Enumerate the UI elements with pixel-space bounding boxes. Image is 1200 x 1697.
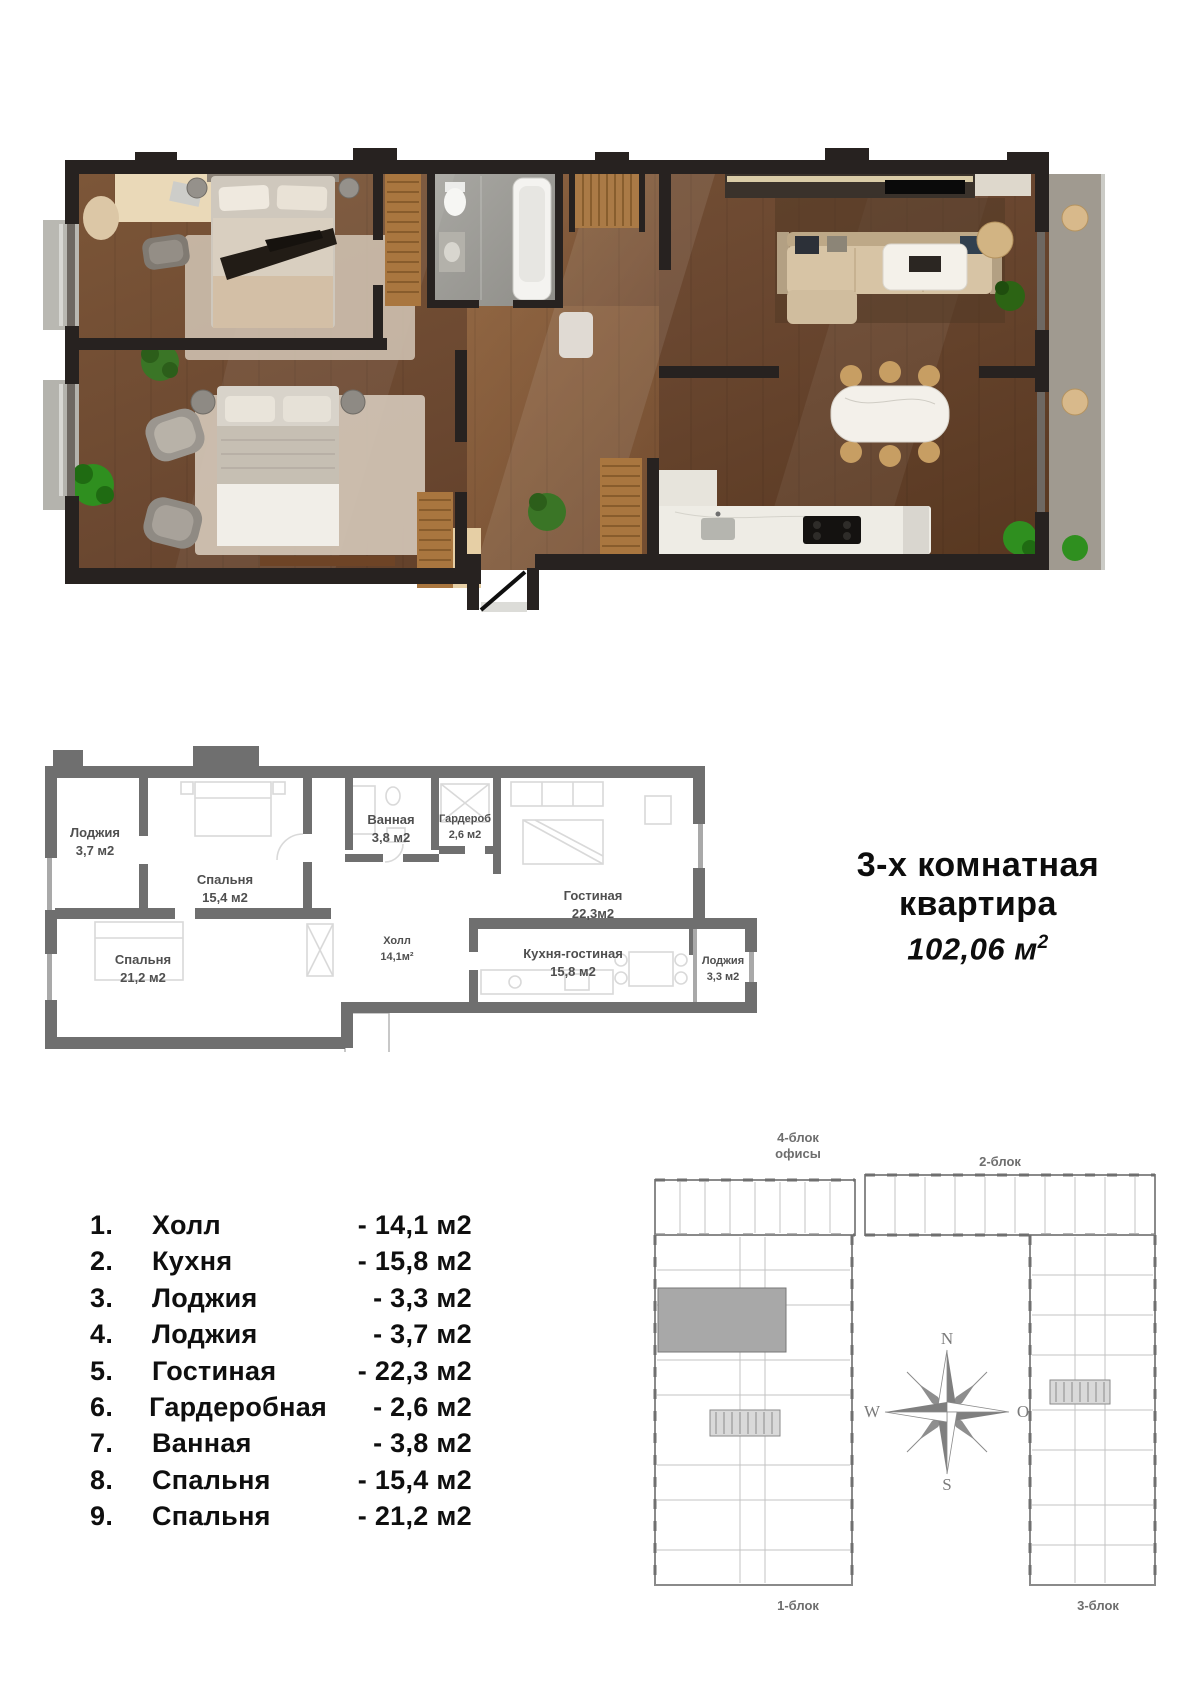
side-table (191, 390, 215, 414)
room-label-wardrobe: Гардероб (439, 813, 491, 825)
block-2 (865, 1175, 1155, 1235)
entrance-door (481, 572, 527, 612)
room-label-bedroom-154: Спальня (197, 872, 253, 887)
armchair (83, 196, 119, 240)
compass-south-label: S (942, 1475, 951, 1494)
plant (1062, 535, 1088, 561)
dining-table (831, 386, 949, 442)
schematic-plan-2d: Лоджия 3,7 м2 Спальня 15,4 м2 Спальня 21… (45, 712, 757, 1052)
block-4 (655, 1180, 855, 1235)
floorplan-poster: Лоджия 3,7 м2 Спальня 15,4 м2 Спальня 21… (0, 0, 1200, 1697)
duvet (217, 484, 339, 546)
room-legend: 1.Холл- 14,1 м2 2.Кухня- 15,8 м2 3.Лоджи… (90, 1210, 472, 1538)
side-table (339, 178, 359, 198)
side-table (341, 390, 365, 414)
wicker-chair (1062, 389, 1088, 415)
sink (444, 242, 460, 262)
room-label-kitchen: Кухня-гостиная (523, 946, 623, 961)
pillow (795, 236, 819, 254)
legend-row: 9.Спальня- 21,2 м2 (90, 1501, 472, 1537)
room-area-kitchen: 15,8 м2 (550, 964, 596, 979)
compass-rose: N W O S (864, 1329, 1029, 1494)
apartment-title-block: 3-х комнатная квартира 102,06 м2 (792, 846, 1164, 968)
room-area-bath: 3,8 м2 (372, 830, 411, 845)
fridge (903, 506, 929, 554)
block-1 (655, 1235, 852, 1585)
room-label-loggia-33: Лоджия (702, 955, 744, 967)
room-label-bath: Ванная (367, 812, 414, 827)
block4-label-line2: офисы (775, 1146, 821, 1161)
chair (840, 441, 862, 463)
apartment-type-line1: 3-х комнатная (792, 846, 1164, 885)
walls-2d (45, 746, 757, 1049)
reading-chair (977, 222, 1013, 258)
block2-label: 2-блок (979, 1154, 1021, 1169)
room-label-bedroom-212: Спальня (115, 952, 171, 967)
compass-east-label: O (1017, 1402, 1029, 1421)
compass-north-label: N (941, 1329, 953, 1348)
compass-west-label: W (864, 1402, 881, 1421)
tv (885, 180, 965, 194)
block1-label: 1-блок (777, 1598, 819, 1613)
render-plan-3d (35, 140, 1165, 615)
legend-row: 1.Холл- 14,1 м2 (90, 1210, 472, 1246)
chair (918, 365, 940, 387)
bath-mat (559, 312, 593, 358)
balcony-rail (1101, 174, 1105, 570)
pillow (225, 396, 275, 422)
chair (840, 365, 862, 387)
blanket (213, 276, 333, 328)
pillow (218, 185, 269, 212)
side-table (187, 178, 207, 198)
room-area-loggia-37: 3,7 м2 (76, 843, 115, 858)
room-area-living: 22,3м2 (572, 906, 614, 921)
apartment-total-area: 102,06 м2 (792, 924, 1164, 968)
block-3 (1030, 1235, 1155, 1585)
block3-label: 3-блок (1077, 1598, 1119, 1613)
block4-label-line1: 4-блок (777, 1130, 819, 1145)
legend-row: 3.Лоджия- 3,3 м2 (90, 1283, 472, 1319)
tray (909, 256, 941, 272)
sofa-chaise (787, 290, 857, 324)
legend-row: 5.Гостиная- 22,3 м2 (90, 1356, 472, 1392)
room-area-hall: 14,1м² (380, 951, 414, 963)
cooktop (803, 516, 861, 544)
wicker-chair (1062, 205, 1088, 231)
right-balcony-floor (1049, 174, 1101, 570)
room-area-loggia-33: 3,3 м2 (707, 971, 740, 983)
legend-row: 2.Кухня- 15,8 м2 (90, 1246, 472, 1282)
room-area-bedroom-154: 15,4 м2 (202, 890, 248, 905)
highlighted-unit (658, 1288, 786, 1352)
stairs (710, 1410, 780, 1436)
room-area-bedroom-212: 21,2 м2 (120, 970, 166, 985)
kitchen-counter (653, 506, 931, 554)
legend-row: 4.Лоджия- 3,7 м2 (90, 1319, 472, 1355)
room-labels-2d: Лоджия 3,7 м2 Спальня 15,4 м2 Спальня 21… (70, 812, 744, 985)
console-shelf (975, 174, 1031, 196)
pillow (827, 236, 847, 252)
dining-area (831, 361, 949, 467)
legend-row: 6.Гардеробная- 2,6 м2 (90, 1392, 472, 1428)
toilet (444, 188, 466, 216)
room-label-loggia-37: Лоджия (70, 825, 120, 840)
chair (879, 445, 901, 467)
counter-corner (653, 470, 717, 506)
room-label-living: Гостиная (564, 888, 623, 903)
chair (918, 441, 940, 463)
legend-row: 8.Спальня- 15,4 м2 (90, 1465, 472, 1501)
kitchen-sink (701, 518, 735, 540)
pillow (277, 185, 328, 211)
apartment-type-line2: квартира (792, 885, 1164, 924)
chair (879, 361, 901, 383)
bench (260, 556, 395, 566)
legend-row: 7.Ванная- 3,8 м2 (90, 1428, 472, 1464)
site-plan: N W O S 4-блок офисы 2-блок 1-блок 3-бло… (650, 1080, 1160, 1625)
room-label-hall: Холл (383, 935, 411, 947)
pillow (283, 396, 331, 422)
room-area-wardrobe: 2,6 м2 (449, 829, 482, 841)
